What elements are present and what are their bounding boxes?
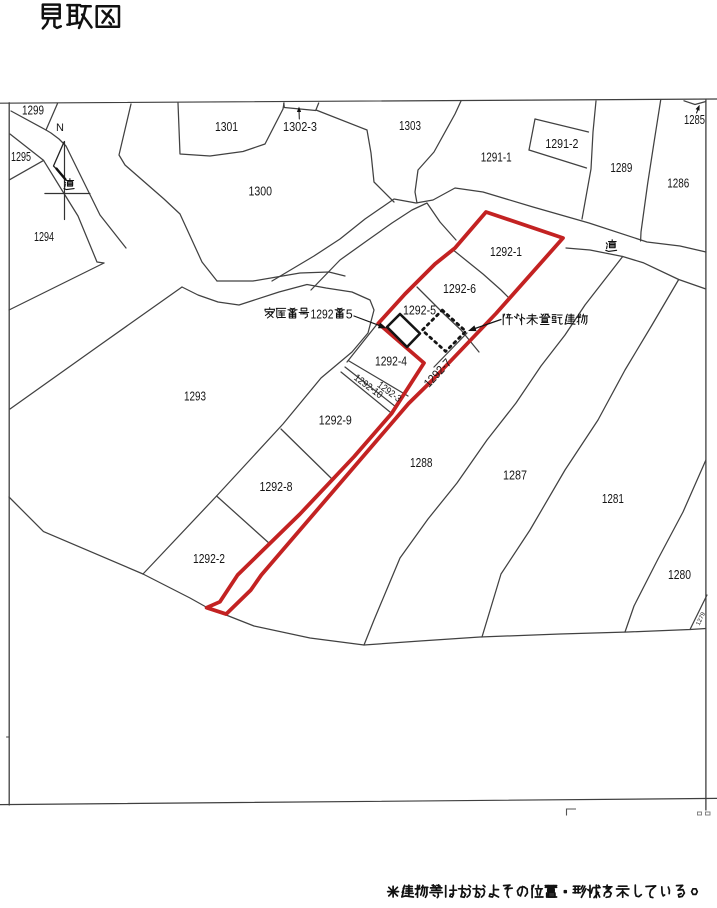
svg-text:1285: 1285 <box>684 112 705 127</box>
svg-text:1287: 1287 <box>503 468 527 483</box>
svg-text:1292-6: 1292-6 <box>443 281 476 296</box>
svg-text:1293: 1293 <box>184 389 206 404</box>
svg-text:1300: 1300 <box>249 184 273 199</box>
svg-text:1302-3: 1302-3 <box>283 119 317 134</box>
svg-text:1288: 1288 <box>410 455 433 470</box>
svg-text:1295: 1295 <box>11 149 31 164</box>
svg-text:1303: 1303 <box>399 118 421 133</box>
svg-text:1292: 1292 <box>311 308 334 322</box>
svg-text:1280: 1280 <box>668 567 691 582</box>
svg-text:1289: 1289 <box>610 160 632 175</box>
svg-text:N: N <box>56 122 64 134</box>
svg-text:1291-1: 1291-1 <box>481 150 512 165</box>
svg-text:1286: 1286 <box>667 176 689 191</box>
svg-text:5: 5 <box>346 308 353 322</box>
svg-text:1292-9: 1292-9 <box>319 413 352 428</box>
svg-text:1292-5: 1292-5 <box>403 303 436 318</box>
svg-text:1294: 1294 <box>34 229 54 244</box>
svg-text:1292-4: 1292-4 <box>375 354 407 369</box>
svg-text:1299: 1299 <box>22 103 44 118</box>
svg-text:1301: 1301 <box>215 119 238 134</box>
svg-text:1291-2: 1291-2 <box>545 136 578 151</box>
svg-text:1292-8: 1292-8 <box>260 479 293 494</box>
svg-text:1281: 1281 <box>602 491 624 506</box>
svg-text:1292-1: 1292-1 <box>490 244 522 259</box>
svg-text:1292-2: 1292-2 <box>193 551 225 566</box>
